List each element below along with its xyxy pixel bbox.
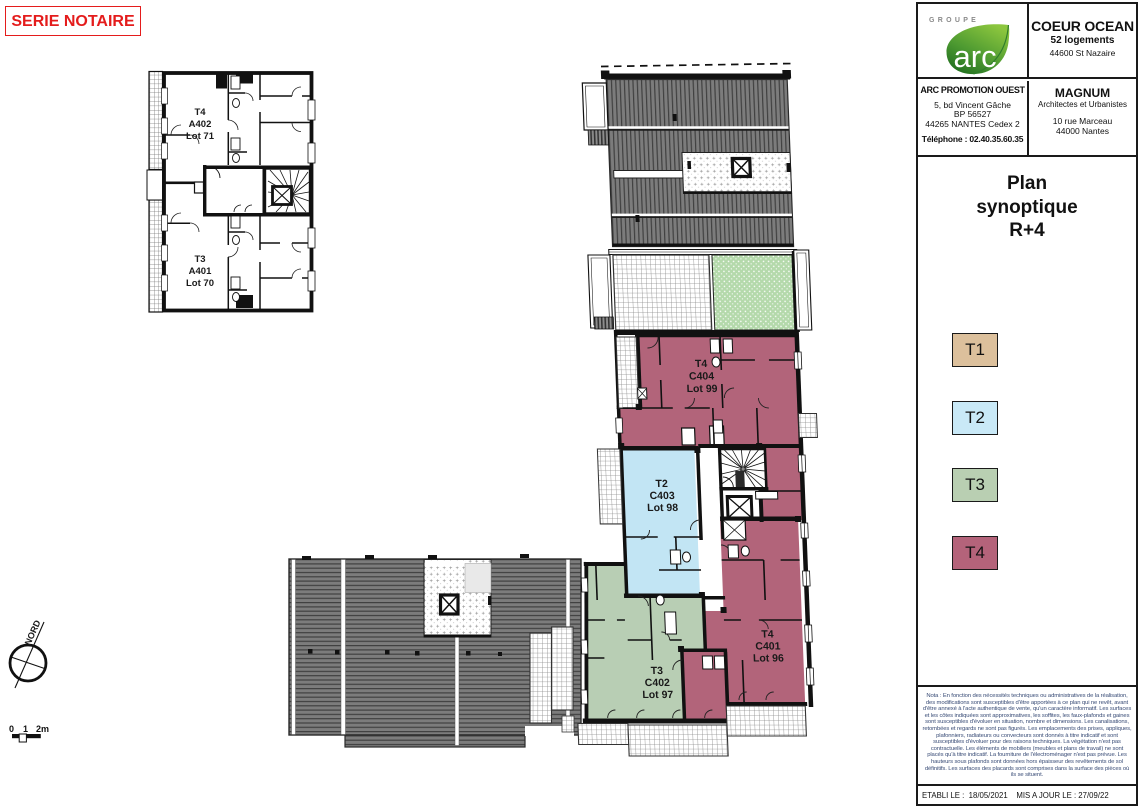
svg-text:C403: C403: [649, 490, 675, 502]
svg-text:T4: T4: [761, 629, 774, 641]
svg-text:A402: A402: [189, 119, 212, 130]
svg-text:T4: T4: [194, 107, 206, 118]
svg-text:Lot 99: Lot 99: [686, 383, 718, 395]
svg-text:0: 0: [9, 724, 14, 734]
svg-text:Lot 71: Lot 71: [186, 131, 215, 142]
svg-text:A401: A401: [189, 266, 212, 277]
svg-text:C401: C401: [755, 641, 781, 653]
svg-text:T2: T2: [655, 478, 668, 490]
svg-text:Lot 70: Lot 70: [186, 278, 214, 289]
svg-text:arc: arc: [954, 39, 997, 74]
svg-text:2m: 2m: [36, 724, 49, 734]
svg-text:C404: C404: [689, 371, 715, 383]
svg-text:C402: C402: [645, 677, 671, 689]
svg-text:T4: T4: [695, 358, 708, 370]
svg-text:Lot 97: Lot 97: [642, 689, 674, 701]
svg-text:Lot 96: Lot 96: [753, 653, 785, 665]
svg-text:1: 1: [23, 724, 28, 734]
svg-text:T3: T3: [651, 665, 664, 677]
svg-text:Lot 98: Lot 98: [647, 502, 679, 514]
svg-text:T3: T3: [194, 254, 205, 265]
